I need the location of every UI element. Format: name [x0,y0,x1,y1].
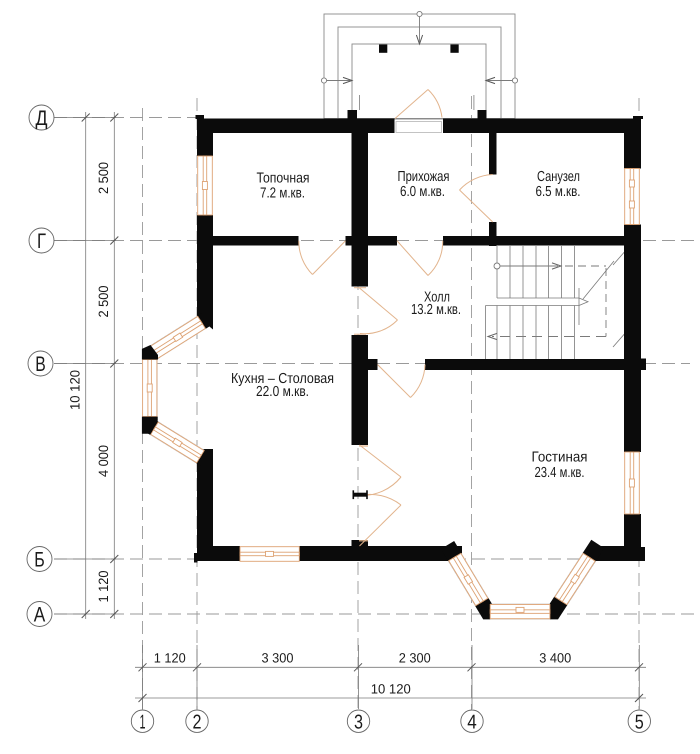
svg-text:1 120: 1 120 [154,651,186,666]
svg-text:В: В [35,353,46,376]
svg-text:4: 4 [467,711,477,733]
svg-text:10 120: 10 120 [68,370,83,410]
svg-text:Г: Г [37,230,46,253]
svg-text:Прихожая: Прихожая [398,169,450,185]
svg-text:4 000: 4 000 [96,445,111,477]
svg-text:22.0 м.кв.: 22.0 м.кв. [256,384,309,400]
svg-text:Б: Б [34,549,45,572]
svg-text:2: 2 [193,711,202,733]
svg-text:5: 5 [635,711,644,733]
svg-text:Топочная: Топочная [257,171,310,187]
svg-text:1 120: 1 120 [96,571,111,603]
svg-text:2 500: 2 500 [96,162,111,194]
svg-text:Санузел: Санузел [537,169,580,185]
svg-text:3 400: 3 400 [539,651,571,666]
svg-text:3: 3 [354,711,363,733]
svg-text:10 120: 10 120 [371,682,411,697]
svg-text:23.4 м.кв.: 23.4 м.кв. [535,465,585,481]
svg-text:2 300: 2 300 [399,651,431,666]
svg-text:1: 1 [140,711,146,733]
svg-text:Д: Д [36,107,48,130]
svg-text:7.2 м.кв.: 7.2 м.кв. [260,186,305,202]
svg-text:6.5 м.кв.: 6.5 м.кв. [536,184,581,200]
svg-text:Гостиная: Гостиная [532,450,588,466]
svg-text:6.0 м.кв.: 6.0 м.кв. [400,184,445,200]
svg-text:3 300: 3 300 [262,651,294,666]
svg-text:А: А [34,604,46,627]
svg-text:13.2 м.кв.: 13.2 м.кв. [411,302,461,318]
svg-text:2 500: 2 500 [96,286,111,318]
